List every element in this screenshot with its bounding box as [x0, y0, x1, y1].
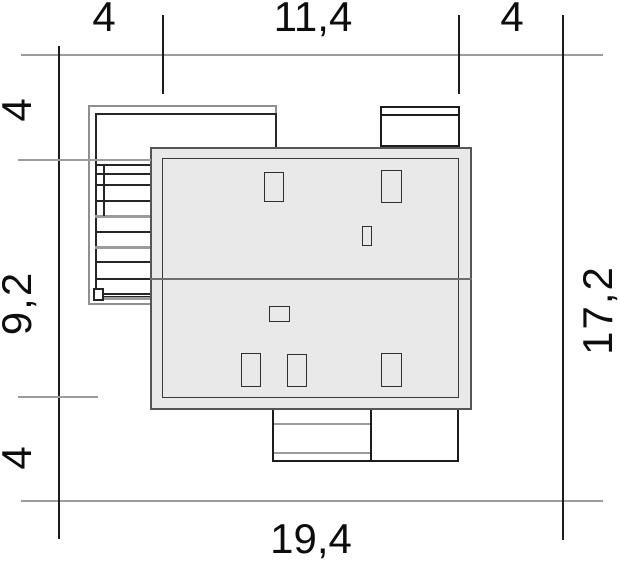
deck-step-shadow	[95, 246, 152, 249]
deck-post	[93, 288, 104, 301]
north-annex-outline	[380, 106, 460, 147]
plot-boundary-left-line	[58, 46, 60, 539]
dimension-tick-left-1	[18, 159, 151, 161]
plot-boundary-bottom-line	[21, 500, 603, 502]
dim-label-top-left: 4	[92, 0, 115, 38]
plot-boundary-right-line	[562, 15, 564, 540]
dim-label-top-right: 4	[500, 0, 523, 38]
dimension-tick-top-1	[162, 15, 164, 94]
north-annex-edge-line	[382, 114, 458, 116]
deck-rail-line	[103, 164, 105, 216]
roof-vent	[269, 306, 290, 322]
terrace-steps-outline	[272, 410, 372, 462]
deck-step-line	[95, 278, 152, 280]
roof-ridge-line	[150, 278, 472, 280]
chimney	[381, 170, 402, 203]
dim-label-right-total: 17,2	[577, 265, 619, 355]
dim-label-left-middle: 9,2	[0, 271, 38, 335]
deck-step-line	[95, 231, 152, 233]
chimney	[264, 172, 284, 202]
chimney	[287, 354, 307, 387]
chimney	[381, 353, 402, 387]
roof-vent	[362, 226, 372, 246]
dim-label-bottom-total: 19,4	[270, 518, 352, 560]
terrace-step-line	[274, 452, 370, 454]
dimension-tick-left-2	[18, 396, 98, 398]
deck-step-line	[95, 261, 152, 263]
chimney	[241, 353, 261, 387]
dimension-tick-top-2	[458, 15, 460, 94]
dim-label-left-top: 4	[0, 96, 38, 121]
terrace-step-line	[274, 423, 370, 425]
dim-label-left-bottom: 4	[0, 444, 38, 469]
dim-label-top-middle: 11,4	[274, 0, 353, 38]
plot-boundary-top-line	[21, 54, 603, 56]
site-plan-canvas: 4 11,4 4 4 9,2 4 17,2 19,4	[0, 0, 620, 562]
terrace-landing-outline	[370, 410, 459, 462]
